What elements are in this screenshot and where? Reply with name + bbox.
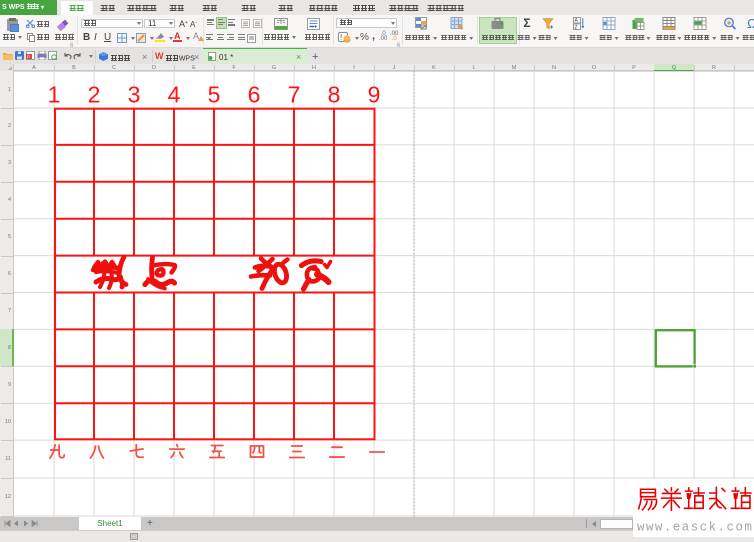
svg-text:8: 8 xyxy=(328,82,341,108)
svg-text:4: 4 xyxy=(168,82,181,108)
svg-text:1: 1 xyxy=(48,82,61,108)
svg-text:9: 9 xyxy=(368,82,381,108)
svg-text:7: 7 xyxy=(288,82,301,108)
svg-text:5: 5 xyxy=(208,82,221,108)
svg-text:6: 6 xyxy=(248,82,261,108)
svg-text:www.easck.com: www.easck.com xyxy=(637,521,753,535)
svg-text:3: 3 xyxy=(128,82,141,108)
svg-text:2: 2 xyxy=(88,82,101,108)
